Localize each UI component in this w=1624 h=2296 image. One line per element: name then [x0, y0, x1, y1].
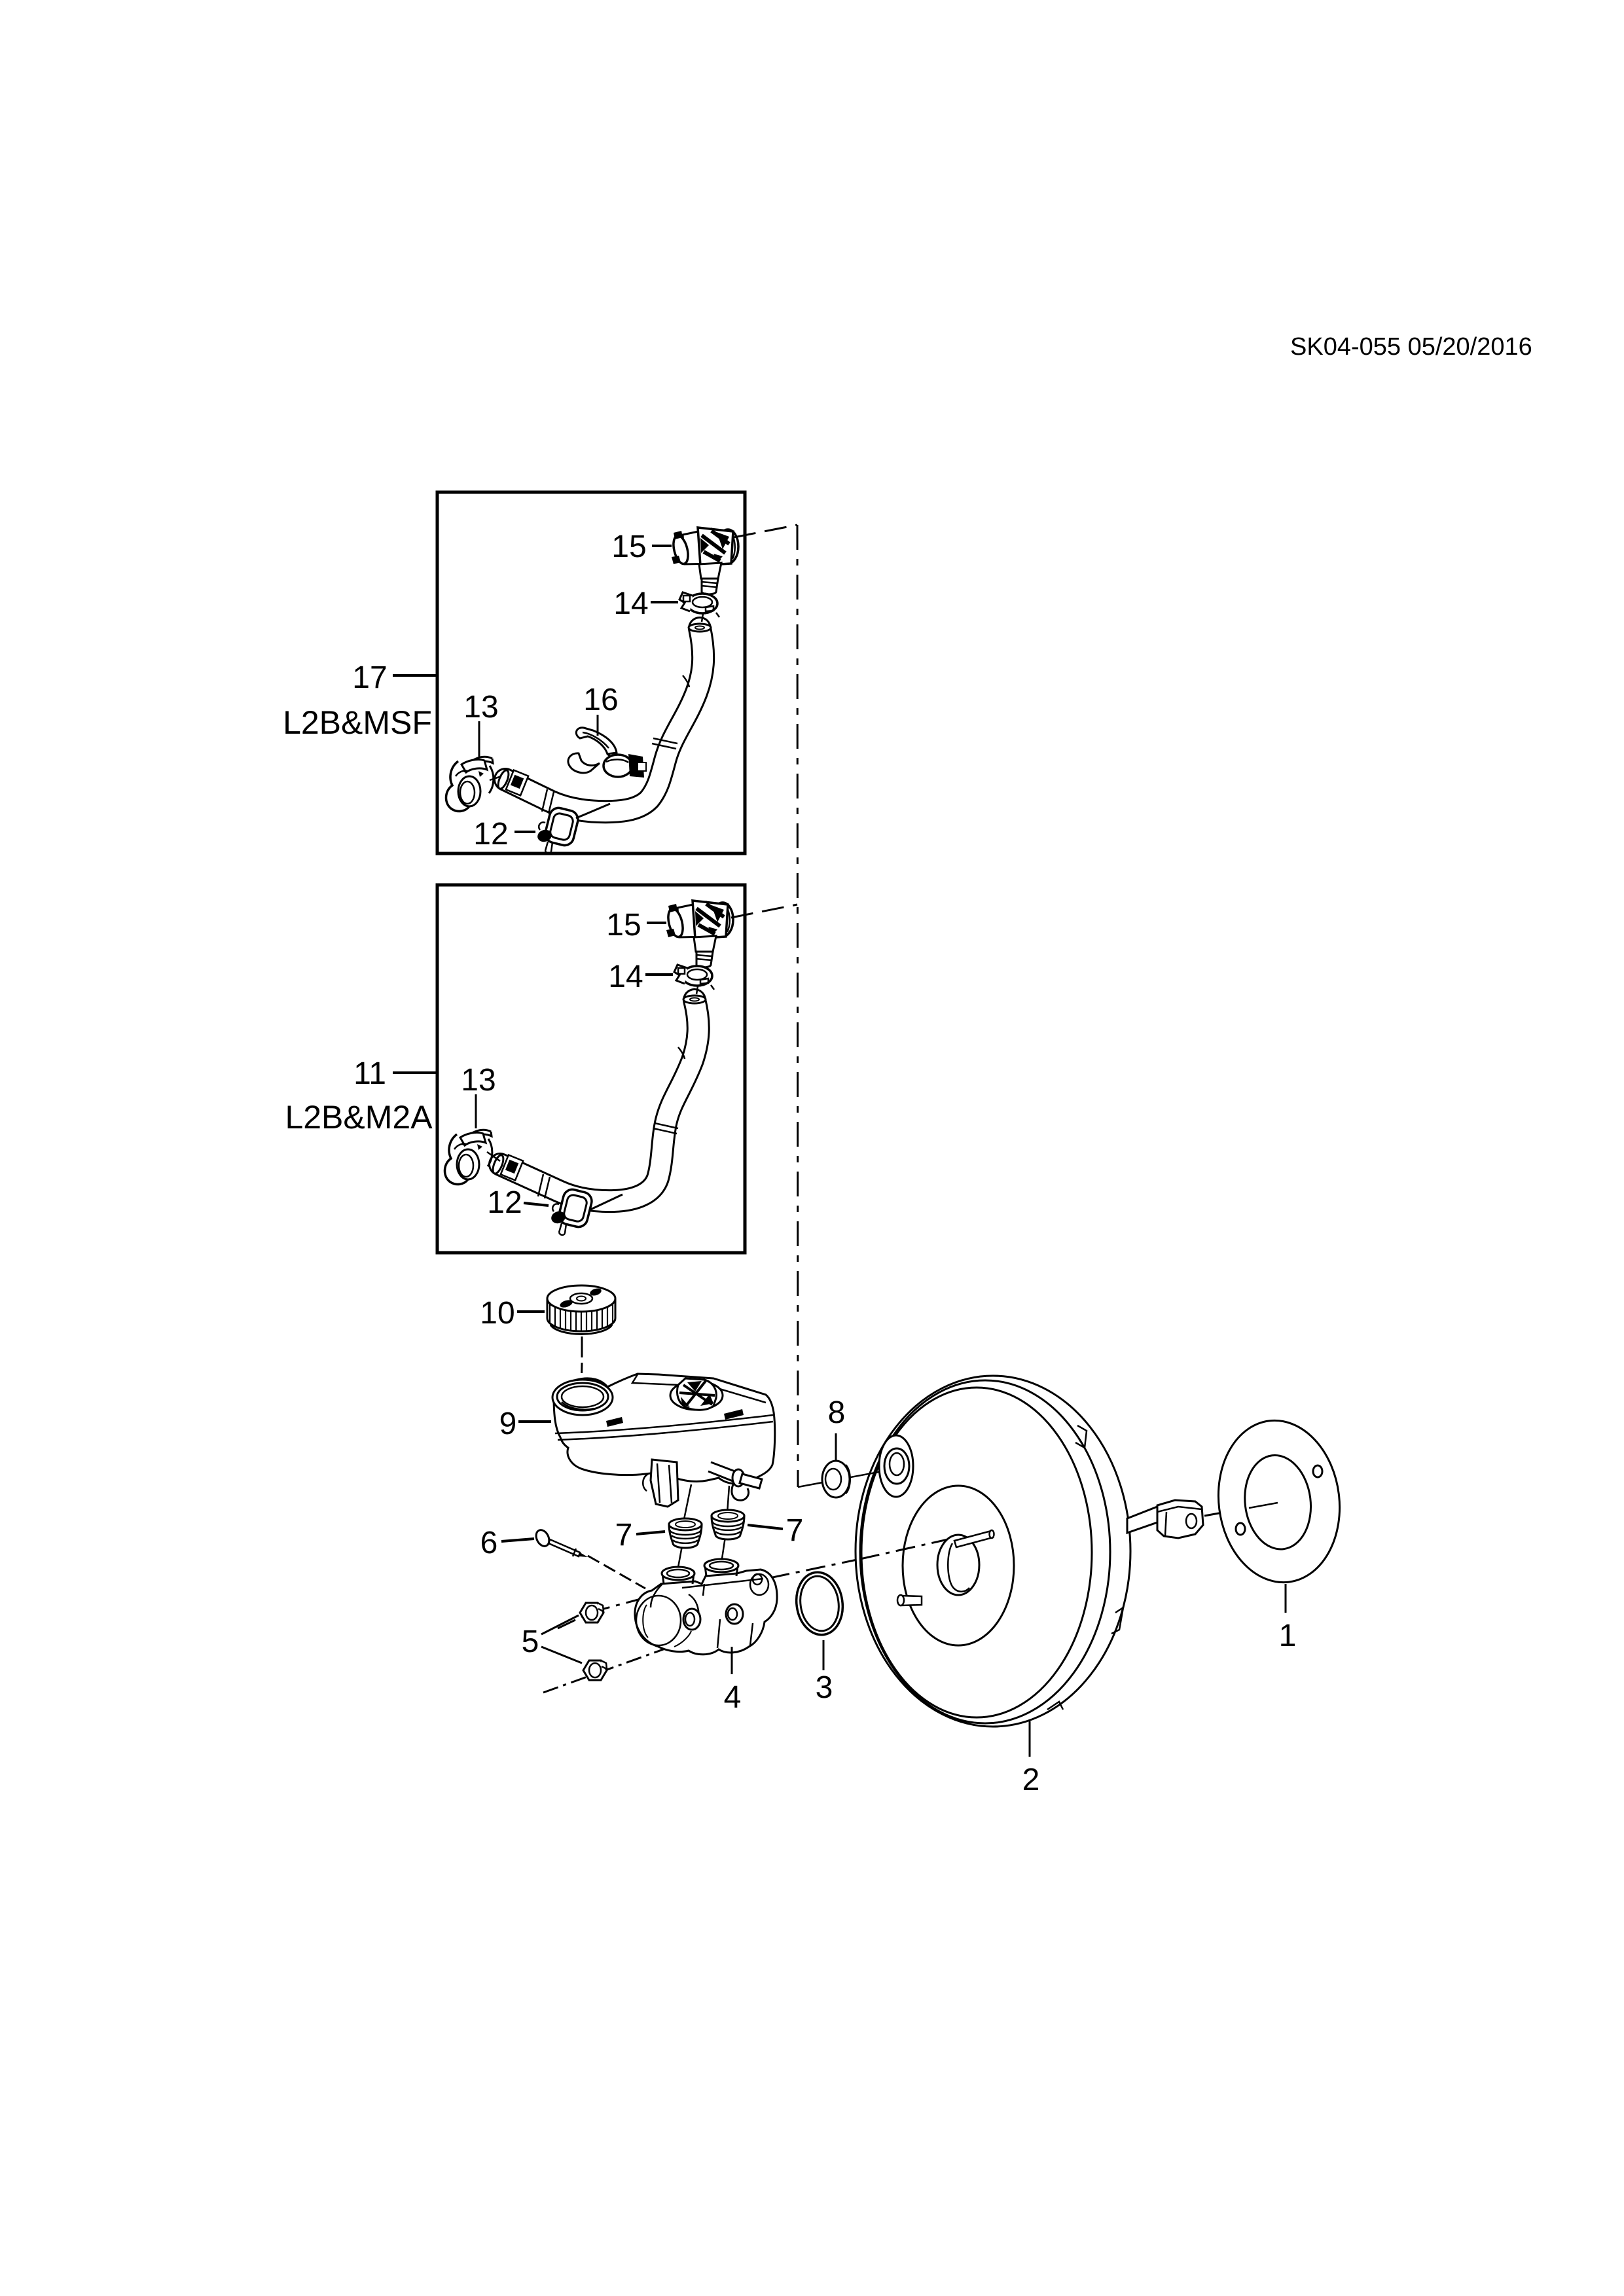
svg-text:9: 9 — [499, 1407, 517, 1441]
svg-text:14: 14 — [608, 960, 643, 994]
svg-text:13: 13 — [463, 690, 498, 725]
svg-text:SK04-055 05/20/2016: SK04-055 05/20/2016 — [1290, 333, 1532, 361]
svg-text:13: 13 — [461, 1063, 496, 1098]
svg-text:12: 12 — [473, 817, 508, 852]
svg-text:2: 2 — [1022, 1763, 1040, 1797]
svg-text:L2B&M2A: L2B&M2A — [285, 1099, 433, 1136]
svg-text:6: 6 — [480, 1526, 498, 1560]
svg-text:3: 3 — [816, 1670, 833, 1705]
svg-text:17: 17 — [352, 660, 387, 695]
svg-text:4: 4 — [724, 1680, 742, 1715]
svg-text:7: 7 — [786, 1513, 804, 1548]
svg-text:15: 15 — [606, 908, 641, 942]
svg-text:10: 10 — [480, 1296, 514, 1331]
svg-text:8: 8 — [828, 1395, 846, 1430]
svg-text:1: 1 — [1279, 1619, 1297, 1653]
svg-text:L2B&MSF: L2B&MSF — [283, 704, 432, 741]
svg-text:5: 5 — [522, 1624, 539, 1659]
svg-text:16: 16 — [583, 683, 618, 717]
svg-text:15: 15 — [611, 529, 646, 564]
svg-text:11: 11 — [353, 1056, 386, 1091]
svg-text:12: 12 — [487, 1185, 522, 1220]
svg-text:7: 7 — [615, 1518, 633, 1552]
svg-text:14: 14 — [613, 586, 648, 621]
